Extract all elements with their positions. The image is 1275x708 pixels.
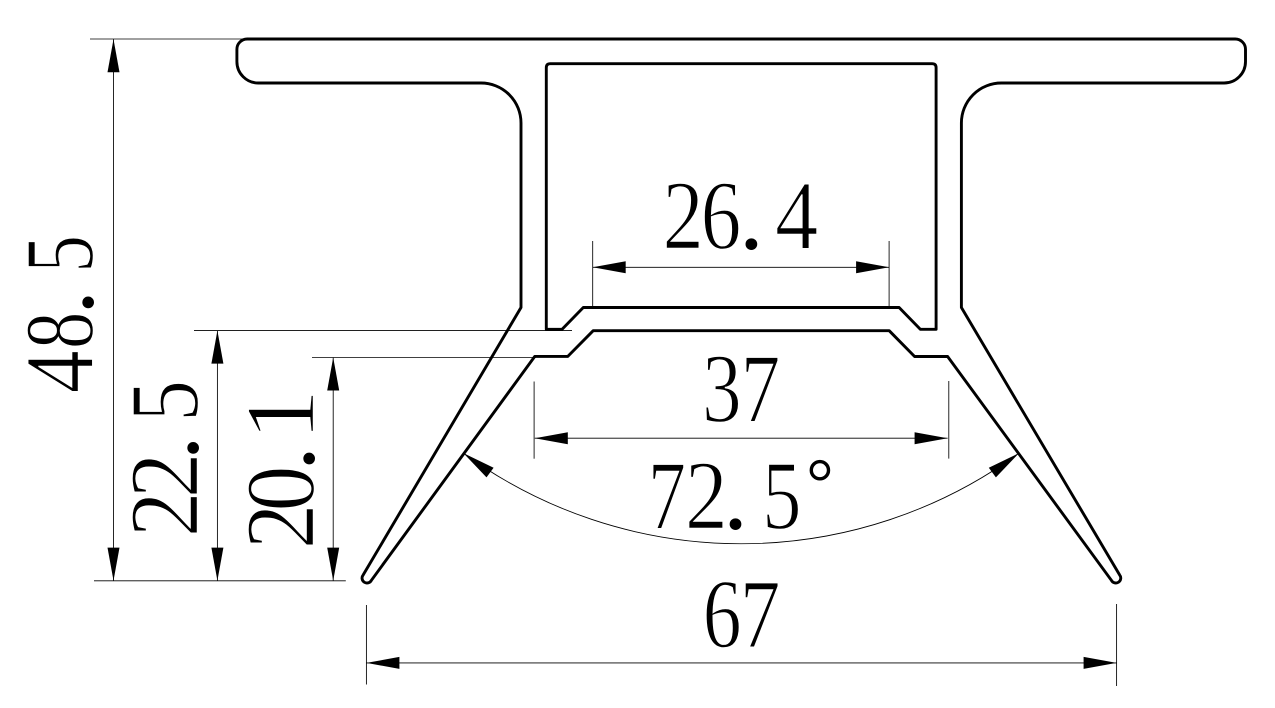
svg-text:5: 5 [6, 235, 115, 273]
svg-text:.: . [227, 446, 336, 471]
svg-text:7: 7 [741, 334, 781, 443]
svg-text:5: 5 [762, 441, 801, 550]
svg-text:2: 2 [663, 162, 704, 271]
svg-text:4: 4 [775, 162, 818, 271]
svg-text:8: 8 [6, 312, 115, 349]
svg-text:.: . [723, 441, 748, 550]
svg-text:3: 3 [702, 334, 742, 443]
svg-text:.: . [6, 290, 115, 315]
svg-text:.: . [111, 435, 220, 460]
svg-text:6: 6 [701, 162, 742, 271]
svg-text:.: . [739, 162, 764, 271]
svg-text:6: 6 [703, 560, 742, 669]
svg-text:5: 5 [111, 380, 220, 422]
svg-text:4: 4 [6, 350, 115, 393]
svg-text:1: 1 [227, 389, 336, 441]
svg-text:2: 2 [685, 441, 728, 550]
svg-text:7: 7 [648, 441, 686, 550]
svg-text:7: 7 [740, 560, 781, 669]
svg-text:0: 0 [227, 465, 336, 511]
